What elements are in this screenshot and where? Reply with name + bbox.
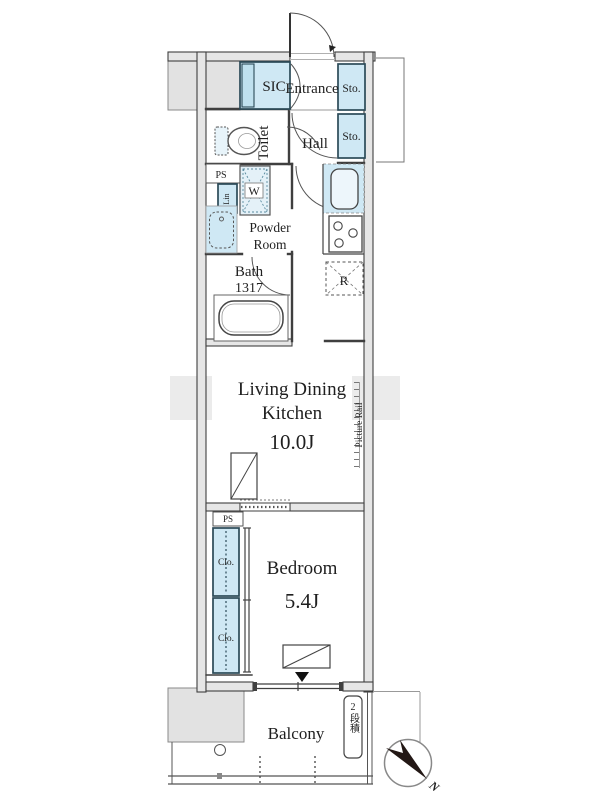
ldk-label-2: Kitchen	[262, 403, 323, 424]
bath-size-label: 1317	[235, 281, 263, 296]
balcony-label: Balcony	[268, 724, 325, 743]
linen-label: Lin	[222, 193, 231, 204]
bath-label: Bath	[235, 264, 264, 280]
bedroom-size-label: 5.4J	[285, 589, 319, 613]
toilet-tank	[215, 127, 228, 155]
wall-ldk-bedroom-left	[206, 503, 240, 511]
bathtub	[214, 295, 288, 341]
closet-top-label: Clo.	[218, 558, 234, 568]
wall-bottom-right	[343, 682, 373, 691]
hall-label: Hall	[302, 136, 328, 152]
sink-basin	[331, 169, 358, 209]
powder-room-label-2: Room	[253, 237, 287, 252]
washer-label: W	[248, 184, 260, 198]
door-arrow-icon	[329, 45, 336, 52]
entrance-door	[290, 13, 336, 60]
sic-label: SIC	[262, 79, 285, 95]
ldk-label-1: Living Dining	[238, 379, 347, 400]
closet-bottom-label: Clo.	[218, 634, 234, 644]
window-arrow-icon	[295, 672, 309, 682]
floor-plan-svg: N SIC Entrance Sto. Sto. Toilet Hall PS …	[0, 0, 600, 800]
structure-block-bottom-left	[168, 688, 244, 742]
compass: N	[385, 740, 444, 796]
toilet-label: Toilet	[256, 125, 272, 161]
closet-sliding-door	[243, 528, 251, 672]
compass-north-label: N	[426, 778, 443, 796]
fridge-label: R	[340, 273, 349, 288]
door-swing-arc	[290, 13, 334, 57]
wall-top-left	[168, 52, 290, 61]
storage-bottom-label: Sto.	[342, 131, 360, 143]
bedroom-label: Bedroom	[267, 558, 338, 579]
storage-top-label: Sto.	[342, 83, 360, 95]
washbasin	[206, 206, 237, 253]
entrance-label: Entrance	[285, 81, 339, 97]
corridor-outline	[376, 58, 404, 162]
toilet-fixture	[215, 127, 260, 155]
powder-room-label-1: Powder	[249, 220, 291, 235]
wall-left	[197, 52, 206, 692]
stacked-note-label: 2段積	[348, 702, 360, 734]
bedroom-details	[213, 512, 343, 691]
floor-plan: N SIC Entrance Sto. Sto. Toilet Hall PS …	[0, 0, 600, 800]
ps-upper-label: PS	[215, 170, 226, 181]
wall-ldk-bedroom-right	[290, 503, 364, 511]
ps-lower-label: PS	[223, 514, 233, 524]
sic-shelf	[242, 64, 254, 107]
balcony-window	[253, 682, 343, 691]
wall-bottom-left	[206, 682, 253, 691]
picture-rail-label: Picture Rail	[355, 402, 365, 447]
ldk-size-label: 10.0J	[270, 430, 315, 454]
drain-circle	[215, 745, 226, 756]
